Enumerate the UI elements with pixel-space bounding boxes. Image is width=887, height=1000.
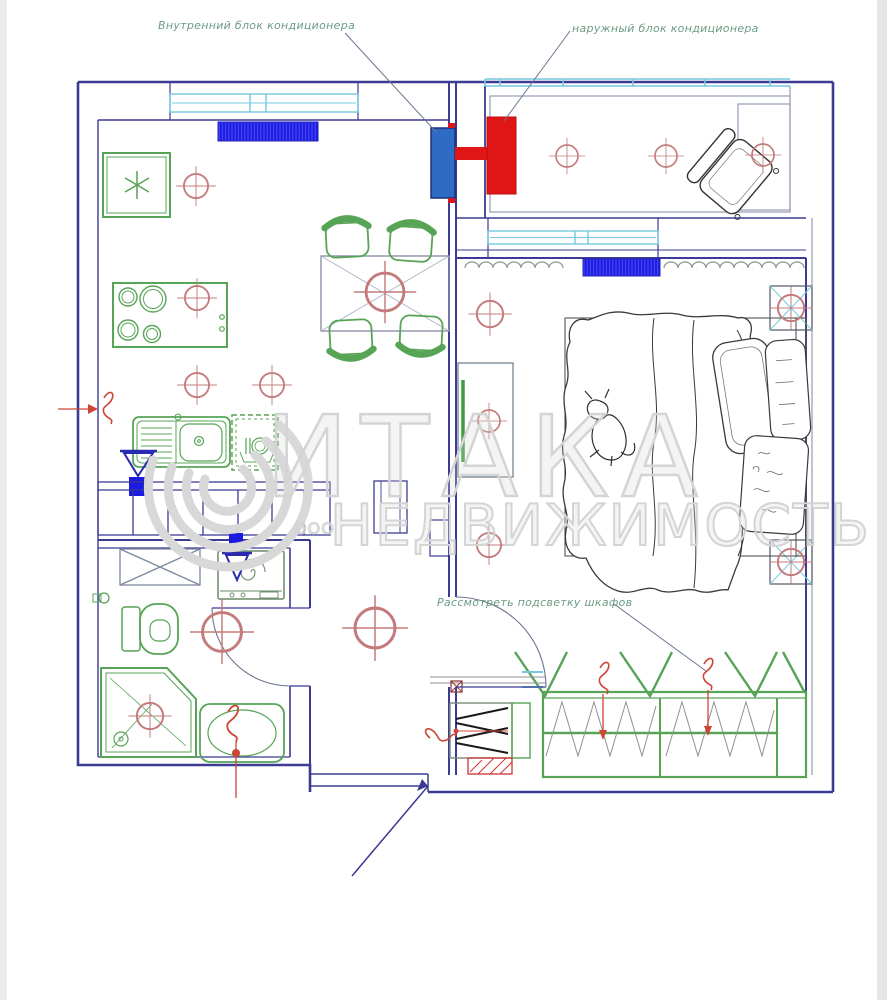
ac-pipe-connector bbox=[455, 147, 488, 160]
toilet bbox=[93, 593, 178, 654]
utensil-icon bbox=[246, 438, 250, 454]
shower bbox=[101, 668, 196, 757]
chair bbox=[324, 217, 370, 258]
wall-column bbox=[374, 481, 407, 533]
bedroom-door bbox=[456, 597, 546, 687]
wardrobe bbox=[515, 652, 806, 777]
ceiling-light bbox=[177, 278, 216, 317]
washbasin bbox=[200, 704, 284, 762]
chair bbox=[398, 315, 444, 356]
ceiling-light bbox=[471, 403, 507, 439]
bathroom-cabinet bbox=[120, 549, 200, 585]
ceiling-light bbox=[177, 365, 216, 404]
floor-plan-page: ИТАКА ООО НЕДВИЖИМОСТЬ Внутренний блок к… bbox=[0, 0, 887, 1000]
bed bbox=[563, 312, 812, 592]
hatch bbox=[666, 702, 774, 756]
ceiling-light bbox=[129, 695, 172, 738]
ceiling-light bbox=[469, 525, 508, 564]
ceiling-light bbox=[343, 596, 408, 661]
plate-icon bbox=[252, 438, 268, 454]
label-wardrobe-lighting: Рассмотреть подсветку шкафов bbox=[437, 596, 632, 609]
pendant-light bbox=[354, 261, 415, 322]
door-swing-marks bbox=[515, 652, 805, 696]
kitchen-window bbox=[170, 94, 358, 112]
textured-pillow bbox=[739, 435, 810, 535]
bathroom-door bbox=[212, 608, 290, 686]
dishwasher bbox=[232, 415, 278, 470]
pillow bbox=[765, 339, 812, 442]
wiring-symbol bbox=[424, 728, 457, 743]
label-indoor-ac-unit: Внутренний блок кондиционера bbox=[158, 19, 355, 32]
wiring-symbol bbox=[599, 662, 608, 694]
floor-plan-drawing bbox=[0, 0, 887, 1000]
chair bbox=[328, 319, 374, 360]
hatch bbox=[546, 702, 656, 756]
snowflake-icon bbox=[125, 171, 149, 199]
kitchen-sink bbox=[133, 414, 230, 467]
outdoor-ac-unit bbox=[487, 117, 516, 194]
ceiling-light bbox=[469, 293, 512, 336]
entrance-door bbox=[352, 779, 428, 876]
fridge bbox=[103, 153, 170, 217]
bedroom-window bbox=[488, 231, 658, 244]
tv-stand bbox=[458, 363, 513, 477]
wiring-symbol bbox=[703, 658, 712, 690]
label-outdoor-ac-unit: наружный блок кондиционера bbox=[572, 22, 759, 35]
kitchen-radiator bbox=[218, 122, 318, 141]
ceiling-light bbox=[648, 138, 684, 174]
shoe-cabinet bbox=[430, 672, 546, 758]
wiring-symbol bbox=[103, 392, 112, 424]
entry-mat bbox=[468, 758, 512, 774]
ceiling-light bbox=[252, 365, 291, 404]
armchair bbox=[685, 126, 780, 221]
kitchen-counter bbox=[98, 482, 330, 535]
ceiling-light bbox=[176, 166, 215, 205]
cooktop bbox=[113, 283, 227, 347]
ceiling-light bbox=[549, 138, 585, 174]
dining-chairs bbox=[324, 217, 444, 359]
ceiling-light bbox=[191, 601, 254, 664]
indoor-ac-unit bbox=[431, 123, 455, 203]
bedroom-radiator bbox=[583, 259, 660, 276]
